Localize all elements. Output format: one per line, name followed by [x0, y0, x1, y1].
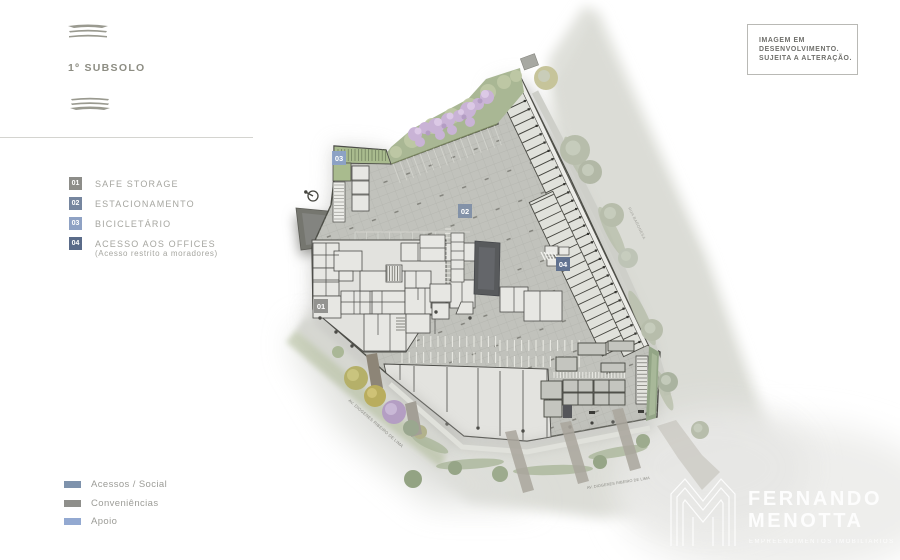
svg-text:02: 02 — [461, 207, 469, 216]
svg-text:FERNANDO: FERNANDO — [748, 488, 882, 510]
svg-text:03: 03 — [335, 154, 343, 163]
svg-text:01: 01 — [317, 302, 325, 311]
svg-text:MENOTTA: MENOTTA — [748, 510, 864, 532]
svg-text:EMPREENDIMENTOS IMOBILIARIOS: EMPREENDIMENTOS IMOBILIARIOS — [749, 539, 895, 545]
svg-text:04: 04 — [559, 260, 568, 269]
